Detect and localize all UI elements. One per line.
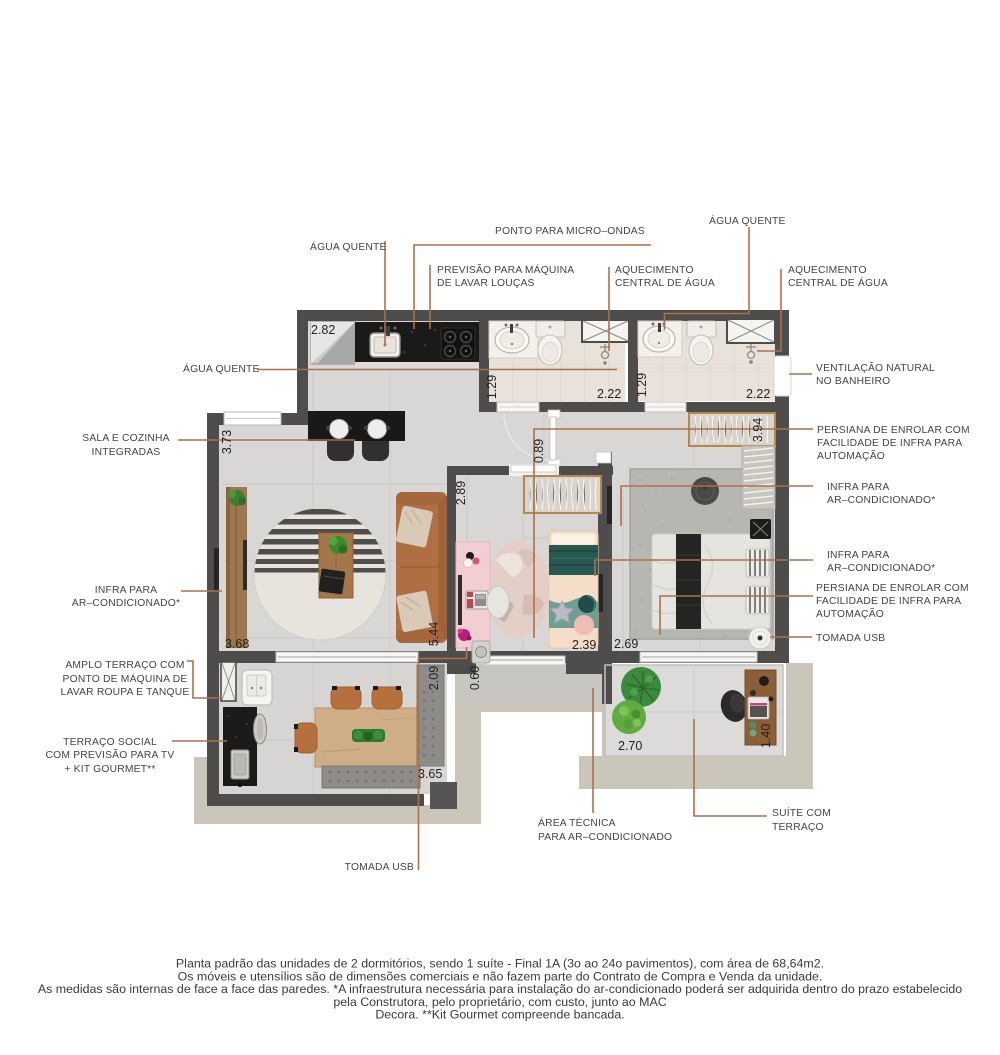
svg-text:LAVAR ROUPA E TANQUE: LAVAR ROUPA E TANQUE [61, 687, 190, 698]
svg-text:ÁGUA QUENTE: ÁGUA QUENTE [310, 240, 387, 253]
svg-text:NO BANHEIRO: NO BANHEIRO [816, 376, 890, 387]
svg-text:SUÍTE COM: SUÍTE COM [772, 806, 831, 819]
svg-text:+ KIT GOURMET**: + KIT GOURMET** [64, 764, 155, 775]
svg-text:5.44: 5.44 [427, 622, 441, 646]
svg-text:PERSIANA DE ENROLAR COM: PERSIANA DE ENROLAR COM [817, 425, 970, 436]
svg-text:AQUECIMENTO: AQUECIMENTO [615, 265, 694, 276]
svg-text:AR–CONDICIONADO*: AR–CONDICIONADO* [827, 563, 935, 574]
svg-text:2.39: 2.39 [572, 638, 596, 652]
svg-text:AUTOMAÇÃO: AUTOMAÇÃO [816, 607, 884, 620]
svg-text:3.73: 3.73 [220, 430, 234, 454]
svg-text:AR–CONDICIONADO*: AR–CONDICIONADO* [72, 598, 180, 609]
svg-text:0.89: 0.89 [532, 439, 546, 463]
svg-text:INFRA PARA: INFRA PARA [827, 482, 889, 493]
svg-text:ÁREA TÉCNICA: ÁREA TÉCNICA [538, 816, 616, 829]
svg-text:2.22: 2.22 [597, 387, 621, 401]
svg-text:INFRA PARA: INFRA PARA [95, 585, 157, 596]
svg-text:2.82: 2.82 [311, 323, 335, 337]
svg-text:3.94: 3.94 [751, 418, 765, 442]
svg-text:2.89: 2.89 [454, 481, 468, 505]
svg-text:COM PREVISÃO PARA TV: COM PREVISÃO PARA TV [46, 748, 175, 761]
svg-text:1.29: 1.29 [635, 373, 649, 397]
svg-text:SALA E COZINHA: SALA E COZINHA [82, 433, 170, 444]
svg-text:1.29: 1.29 [485, 375, 499, 399]
svg-text:ÁGUA QUENTE: ÁGUA QUENTE [183, 362, 260, 375]
svg-text:PONTO PARA MICRO–ONDAS: PONTO PARA MICRO–ONDAS [495, 226, 645, 237]
svg-text:FACILIDADE DE INFRA PARA: FACILIDADE DE INFRA PARA [817, 438, 962, 449]
svg-text:INTEGRADAS: INTEGRADAS [92, 447, 161, 458]
svg-text:CENTRAL DE ÁGUA: CENTRAL DE ÁGUA [615, 276, 715, 289]
svg-text:PARA AR–CONDICIONADO: PARA AR–CONDICIONADO [538, 832, 672, 843]
svg-text:TERRAÇO: TERRAÇO [772, 822, 824, 833]
svg-text:INFRA PARA: INFRA PARA [827, 550, 889, 561]
svg-text:1.40: 1.40 [759, 724, 773, 748]
svg-text:PREVISÃO PARA MÁQUINA: PREVISÃO PARA MÁQUINA [437, 263, 574, 276]
svg-text:Decora. **Kit Gourmet compreen: Decora. **Kit Gourmet compreende bancada… [375, 1008, 624, 1022]
svg-text:VENTILAÇÃO NATURAL: VENTILAÇÃO NATURAL [816, 361, 935, 374]
svg-text:TERRAÇO SOCIAL: TERRAÇO SOCIAL [63, 737, 157, 748]
svg-text:2.69: 2.69 [614, 637, 638, 651]
svg-text:2.22: 2.22 [746, 387, 770, 401]
svg-text:2.70: 2.70 [618, 739, 642, 753]
svg-text:AQUECIMENTO: AQUECIMENTO [788, 265, 867, 276]
svg-text:AR–CONDICIONADO*: AR–CONDICIONADO* [827, 495, 935, 506]
svg-text:3.65: 3.65 [418, 767, 442, 781]
svg-text:FACILIDADE DE INFRA PARA: FACILIDADE DE INFRA PARA [816, 596, 961, 607]
svg-text:TOMADA USB: TOMADA USB [345, 862, 414, 873]
svg-text:2.09: 2.09 [427, 666, 441, 690]
svg-text:ÁGUA QUENTE: ÁGUA QUENTE [709, 214, 786, 227]
svg-text:PONTO DE MÁQUINA DE: PONTO DE MÁQUINA DE [63, 672, 188, 685]
svg-text:0.60: 0.60 [468, 666, 482, 690]
svg-text:AUTOMAÇÃO: AUTOMAÇÃO [817, 449, 885, 462]
svg-text:CENTRAL DE ÁGUA: CENTRAL DE ÁGUA [788, 276, 888, 289]
svg-text:PERSIANA DE ENROLAR COM: PERSIANA DE ENROLAR COM [816, 583, 969, 594]
svg-text:TOMADA USB: TOMADA USB [816, 633, 885, 644]
svg-text:3.68: 3.68 [225, 637, 249, 651]
svg-text:AMPLO TERRAÇO COM: AMPLO TERRAÇO COM [65, 660, 184, 671]
svg-text:DE LAVAR LOUÇAS: DE LAVAR LOUÇAS [437, 278, 535, 289]
